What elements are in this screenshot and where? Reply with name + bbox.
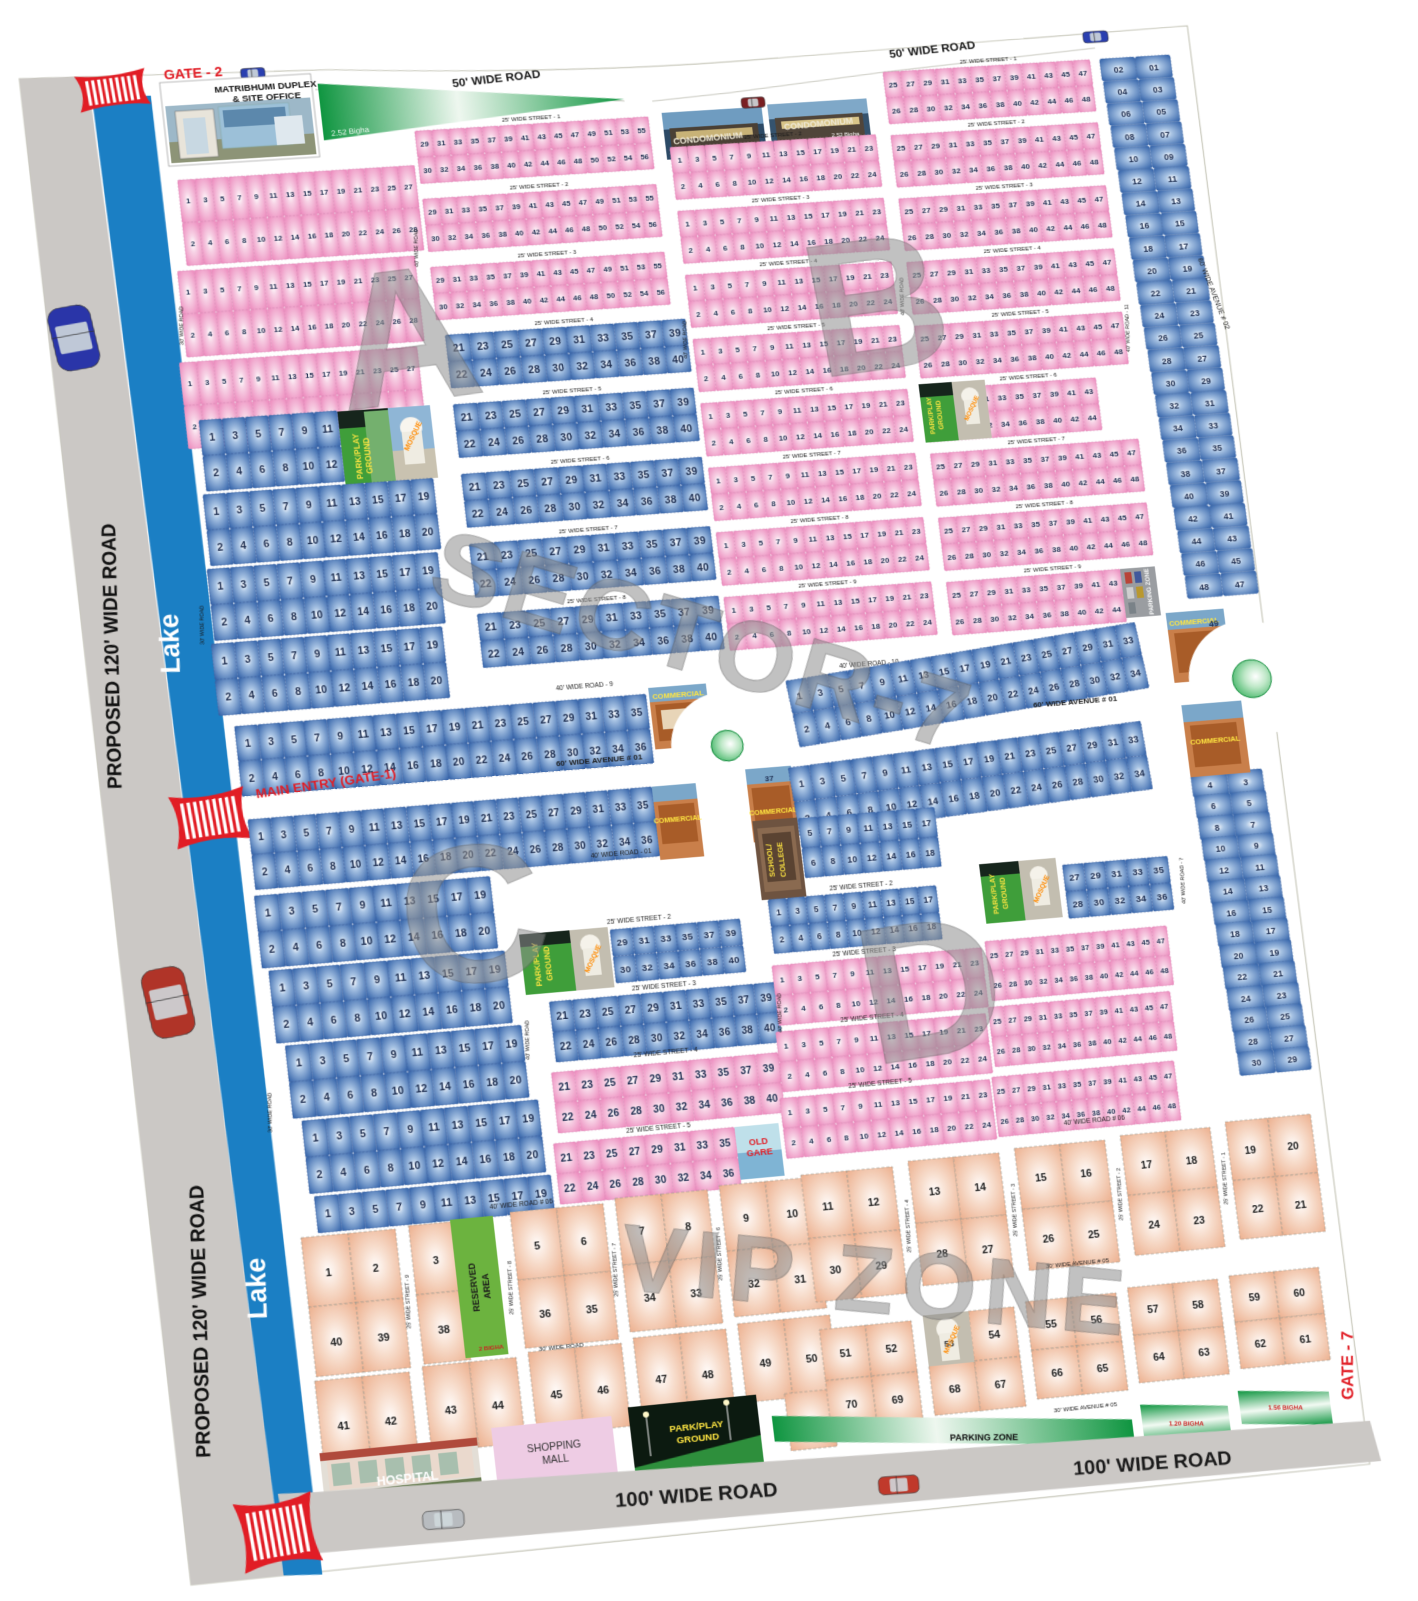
svg-text:47: 47 (1086, 132, 1096, 141)
svg-text:33: 33 (1127, 734, 1139, 746)
svg-text:26: 26 (1244, 1015, 1255, 1026)
svg-text:11: 11 (334, 647, 347, 659)
svg-text:36: 36 (721, 1098, 734, 1110)
svg-text:05: 05 (1156, 107, 1167, 117)
svg-text:31: 31 (444, 206, 453, 215)
svg-text:17: 17 (868, 595, 878, 604)
svg-text:26: 26 (605, 1037, 618, 1049)
svg-text:35: 35 (1069, 1010, 1078, 1019)
svg-text:42: 42 (1086, 542, 1096, 551)
svg-text:42: 42 (1115, 970, 1124, 979)
svg-text:31: 31 (592, 804, 605, 816)
svg-text:12: 12 (1132, 176, 1143, 186)
svg-text:11: 11 (395, 973, 408, 985)
svg-text:40: 40 (680, 424, 693, 435)
svg-text:41: 41 (528, 201, 537, 210)
svg-text:21: 21 (556, 1011, 569, 1023)
svg-text:26: 26 (1051, 779, 1063, 791)
svg-text:42: 42 (1078, 478, 1088, 487)
svg-text:14: 14 (813, 431, 823, 440)
svg-text:13: 13 (810, 404, 820, 413)
svg-text:48: 48 (1167, 1101, 1176, 1111)
svg-text:15: 15 (835, 467, 845, 476)
svg-text:40: 40 (1069, 543, 1079, 552)
svg-text:21: 21 (961, 1092, 971, 1102)
svg-text:18: 18 (503, 1152, 516, 1164)
svg-text:41: 41 (1026, 72, 1036, 81)
svg-text:1.56 BIGHA: 1.56 BIGHA (1268, 1405, 1303, 1412)
svg-text:43: 43 (537, 132, 546, 141)
svg-text:20: 20 (1287, 1142, 1300, 1154)
svg-text:29: 29 (986, 588, 996, 597)
svg-text:30: 30 (423, 166, 432, 175)
svg-text:46: 46 (597, 1385, 610, 1397)
svg-text:36: 36 (986, 164, 996, 173)
svg-text:15: 15 (376, 569, 389, 581)
svg-text:27: 27 (961, 525, 971, 534)
svg-text:19: 19 (1269, 948, 1280, 959)
svg-text:31: 31 (573, 335, 586, 346)
svg-text:36: 36 (640, 497, 653, 508)
svg-text:33: 33 (1021, 585, 1031, 594)
svg-text:41: 41 (1075, 452, 1085, 461)
svg-text:38: 38 (437, 1324, 450, 1336)
svg-text:21: 21 (1004, 751, 1016, 763)
svg-text:10: 10 (256, 326, 265, 335)
svg-text:25: 25 (501, 340, 514, 351)
svg-text:20: 20 (421, 527, 434, 539)
svg-text:33: 33 (696, 1140, 709, 1152)
svg-text:11: 11 (357, 729, 370, 741)
svg-text:26: 26 (512, 436, 525, 447)
svg-text:15: 15 (901, 819, 912, 830)
svg-text:18: 18 (871, 621, 881, 630)
svg-text:35: 35 (645, 539, 658, 550)
svg-text:18: 18 (430, 758, 443, 770)
svg-text:43: 43 (1133, 1074, 1142, 1084)
svg-text:41: 41 (1067, 388, 1077, 397)
svg-text:48: 48 (573, 156, 582, 165)
svg-text:29: 29 (428, 207, 437, 216)
svg-text:29: 29 (1027, 1084, 1036, 1094)
svg-text:45: 45 (1093, 322, 1103, 331)
svg-text:30' WIDE ROAD: 30' WIDE ROAD (267, 1093, 274, 1133)
svg-text:12: 12 (877, 1130, 888, 1140)
svg-text:53: 53 (636, 262, 645, 271)
svg-text:14: 14 (821, 495, 831, 504)
svg-text:40: 40 (697, 563, 710, 574)
svg-text:33: 33 (461, 205, 470, 214)
svg-text:43: 43 (1108, 579, 1118, 588)
svg-text:26: 26 (521, 751, 534, 763)
svg-text:41: 41 (536, 269, 545, 278)
svg-text:41: 41 (1034, 135, 1044, 144)
svg-text:26: 26 (899, 170, 909, 179)
svg-text:37: 37 (495, 203, 504, 212)
svg-text:10: 10 (1215, 844, 1226, 854)
svg-text:29: 29 (616, 937, 629, 949)
svg-text:13: 13 (286, 281, 295, 290)
svg-text:45: 45 (1117, 513, 1127, 522)
svg-text:36: 36 (1002, 291, 1012, 300)
svg-text:37: 37 (653, 399, 666, 410)
svg-text:50: 50 (606, 291, 615, 300)
svg-text:47: 47 (1110, 321, 1120, 330)
svg-text:16: 16 (376, 531, 389, 543)
svg-text:16: 16 (479, 1155, 492, 1167)
svg-text:57: 57 (1147, 1305, 1160, 1317)
svg-text:15: 15 (842, 532, 852, 541)
svg-text:47: 47 (1160, 1002, 1169, 1011)
svg-text:20: 20 (526, 1150, 539, 1162)
svg-text:10: 10 (349, 859, 362, 871)
svg-text:25: 25 (602, 1007, 615, 1019)
svg-text:20: 20 (452, 757, 465, 769)
svg-text:29: 29 (649, 1074, 662, 1086)
svg-text:40: 40 (515, 228, 524, 237)
svg-text:10: 10 (778, 433, 788, 442)
svg-text:09: 09 (1163, 152, 1174, 162)
svg-text:10: 10 (859, 1132, 870, 1142)
svg-text:37: 37 (487, 135, 496, 144)
svg-text:56: 56 (656, 287, 665, 296)
svg-text:14: 14 (439, 1082, 452, 1094)
svg-text:39: 39 (1219, 488, 1230, 498)
svg-text:27: 27 (913, 143, 923, 152)
svg-text:10: 10 (256, 235, 265, 244)
svg-text:46: 46 (1121, 540, 1131, 549)
svg-text:38: 38 (664, 495, 677, 506)
svg-text:52: 52 (623, 290, 632, 299)
svg-text:45: 45 (1145, 1003, 1154, 1012)
svg-text:29: 29 (931, 141, 941, 150)
svg-text:18: 18 (486, 1078, 499, 1090)
svg-text:07: 07 (1160, 129, 1171, 139)
svg-text:39: 39 (685, 466, 698, 477)
svg-text:32: 32 (675, 1102, 688, 1114)
svg-text:34: 34 (663, 960, 676, 972)
svg-text:33: 33 (1132, 867, 1144, 879)
svg-text:26: 26 (520, 505, 533, 517)
svg-text:40: 40 (1053, 416, 1063, 425)
svg-text:35: 35 (1065, 944, 1074, 953)
svg-text:56: 56 (648, 220, 657, 229)
svg-text:40: 40 (728, 955, 740, 967)
svg-text:32: 32 (592, 500, 605, 511)
svg-text:24: 24 (586, 1181, 599, 1193)
svg-text:46: 46 (565, 225, 574, 234)
svg-text:53: 53 (620, 127, 629, 136)
svg-text:30: 30 (619, 964, 631, 976)
svg-text:31: 31 (988, 458, 998, 467)
svg-text:12: 12 (788, 368, 798, 377)
svg-text:18: 18 (816, 173, 826, 182)
svg-text:25: 25 (387, 184, 396, 193)
svg-text:32: 32 (1042, 1043, 1051, 1053)
svg-text:37: 37 (764, 774, 774, 784)
svg-text:13: 13 (928, 1187, 941, 1199)
svg-text:14: 14 (828, 560, 838, 569)
svg-text:31: 31 (638, 935, 651, 947)
svg-text:38: 38 (1043, 481, 1053, 490)
svg-text:30: 30 (934, 167, 944, 176)
svg-text:48: 48 (1138, 538, 1148, 547)
svg-text:51: 51 (620, 263, 629, 272)
svg-text:25: 25 (1280, 1012, 1291, 1023)
svg-text:10: 10 (1128, 154, 1139, 164)
svg-text:26: 26 (947, 553, 957, 562)
svg-text:27: 27 (953, 461, 963, 470)
svg-text:35: 35 (1015, 392, 1025, 401)
svg-text:35: 35 (983, 138, 993, 147)
svg-text:22: 22 (475, 755, 488, 767)
svg-text:15: 15 (303, 280, 312, 289)
svg-text:33: 33 (469, 273, 478, 282)
svg-text:14: 14 (1222, 887, 1233, 897)
svg-text:22: 22 (1252, 1204, 1265, 1216)
svg-text:33: 33 (1013, 521, 1023, 530)
svg-text:41: 41 (1050, 261, 1060, 270)
svg-text:48: 48 (581, 224, 590, 233)
svg-text:34: 34 (1009, 483, 1019, 492)
svg-text:PARKING ZONE: PARKING ZONE (950, 1432, 1019, 1442)
svg-text:28: 28 (1072, 777, 1084, 789)
svg-text:40: 40 (330, 1337, 343, 1349)
svg-text:51: 51 (612, 195, 621, 204)
svg-text:21: 21 (1186, 286, 1197, 296)
svg-text:17: 17 (498, 1116, 511, 1128)
svg-text:19: 19 (830, 146, 840, 155)
svg-text:38: 38 (995, 100, 1005, 109)
svg-text:31: 31 (581, 404, 594, 415)
svg-text:42: 42 (1038, 161, 1048, 170)
svg-text:38: 38 (1027, 353, 1037, 362)
svg-text:34: 34 (1025, 612, 1035, 621)
svg-text:26: 26 (1158, 333, 1169, 343)
svg-text:31: 31 (1004, 586, 1014, 595)
svg-text:39: 39 (760, 993, 773, 1005)
svg-text:32: 32 (1114, 896, 1126, 908)
svg-text:43: 43 (1084, 387, 1094, 396)
svg-text:30: 30 (942, 231, 952, 240)
svg-text:40: 40 (1061, 479, 1071, 488)
svg-text:12: 12 (772, 240, 782, 249)
svg-text:30: 30 (974, 486, 984, 495)
svg-text:19: 19 (426, 640, 439, 652)
svg-text:12: 12 (330, 534, 343, 546)
svg-text:20: 20 (989, 788, 1001, 800)
svg-text:33: 33 (692, 999, 705, 1011)
svg-text:19: 19 (885, 594, 895, 603)
svg-text:39: 39 (1025, 199, 1035, 208)
svg-text:16: 16 (838, 494, 848, 503)
svg-text:47: 47 (1102, 258, 1112, 267)
svg-text:29: 29 (1090, 871, 1102, 883)
svg-text:32: 32 (959, 230, 969, 239)
svg-text:36: 36 (632, 427, 645, 438)
svg-text:42: 42 (1054, 287, 1064, 296)
svg-text:33: 33 (613, 472, 626, 483)
svg-text:29: 29 (420, 139, 429, 148)
svg-text:22: 22 (897, 554, 907, 563)
svg-text:34: 34 (977, 229, 987, 238)
svg-text:48: 48 (1105, 284, 1115, 293)
svg-text:35: 35 (470, 136, 479, 145)
svg-text:11: 11 (322, 425, 335, 436)
svg-text:33: 33 (1208, 421, 1219, 431)
svg-text:36: 36 (1010, 354, 1020, 363)
svg-text:26: 26 (609, 1179, 622, 1191)
svg-text:38: 38 (498, 229, 507, 238)
svg-text:14: 14 (361, 681, 374, 693)
svg-text:31: 31 (674, 1142, 687, 1154)
svg-text:35: 35 (1031, 520, 1041, 529)
svg-text:27: 27 (1012, 1085, 1021, 1095)
svg-text:13: 13 (817, 469, 827, 478)
svg-text:34: 34 (696, 1029, 709, 1041)
svg-text:30: 30 (1031, 1114, 1040, 1124)
svg-text:11: 11 (330, 573, 343, 585)
svg-text:20: 20 (430, 676, 443, 688)
svg-text:27: 27 (525, 338, 538, 349)
svg-text:49: 49 (595, 197, 604, 206)
svg-text:22: 22 (560, 1041, 573, 1053)
svg-text:31: 31 (940, 77, 950, 86)
svg-text:16: 16 (384, 680, 397, 692)
svg-text:45: 45 (550, 1389, 563, 1401)
svg-text:27: 27 (1283, 1033, 1294, 1044)
svg-text:23: 23 (1189, 308, 1200, 318)
svg-text:49: 49 (603, 264, 612, 273)
svg-text:46: 46 (1195, 559, 1206, 569)
svg-text:37: 37 (1216, 466, 1227, 476)
svg-text:47: 47 (655, 1374, 668, 1386)
svg-text:40' WIDE ROAD: 40' WIDE ROAD (682, 320, 689, 358)
svg-text:43: 43 (1126, 939, 1135, 948)
svg-text:25: 25 (1193, 331, 1204, 341)
svg-text:10: 10 (747, 177, 757, 186)
svg-text:38: 38 (706, 956, 719, 968)
svg-text:32: 32 (1046, 1113, 1055, 1123)
svg-text:16: 16 (912, 1127, 922, 1137)
svg-text:41: 41 (1111, 940, 1120, 949)
svg-text:28: 28 (917, 169, 927, 178)
svg-text:30' WIDE ROAD: 30' WIDE ROAD (179, 306, 186, 345)
svg-text:46: 46 (1080, 222, 1090, 231)
svg-text:36: 36 (1156, 892, 1168, 904)
svg-text:32: 32 (673, 1031, 686, 1043)
svg-text:48: 48 (1081, 95, 1091, 104)
svg-text:39: 39 (1017, 136, 1027, 145)
svg-text:40: 40 (1184, 491, 1195, 501)
svg-text:33: 33 (660, 934, 673, 946)
svg-text:13: 13 (802, 340, 812, 349)
svg-text:27: 27 (624, 1005, 637, 1017)
svg-text:30: 30 (1165, 378, 1176, 388)
svg-text:59: 59 (1248, 1292, 1261, 1304)
svg-text:25: 25 (517, 716, 530, 728)
svg-text:10: 10 (391, 1086, 404, 1098)
svg-text:46: 46 (1148, 1033, 1157, 1042)
svg-text:35: 35 (621, 332, 634, 343)
svg-text:16: 16 (462, 1080, 475, 1092)
svg-text:19: 19 (448, 722, 461, 734)
svg-text:33: 33 (621, 541, 634, 552)
svg-text:43: 43 (553, 268, 562, 277)
svg-text:38: 38 (1003, 163, 1013, 172)
svg-text:46: 46 (1096, 348, 1106, 357)
svg-text:45: 45 (1109, 449, 1119, 458)
svg-text:13: 13 (380, 727, 393, 739)
svg-text:10: 10 (786, 498, 796, 507)
svg-text:34: 34 (985, 292, 995, 301)
svg-text:06: 06 (1121, 109, 1132, 119)
svg-text:13: 13 (353, 571, 366, 583)
svg-text:42: 42 (1118, 1036, 1127, 1045)
svg-text:41: 41 (1042, 198, 1052, 207)
svg-text:40: 40 (764, 1023, 777, 1035)
svg-text:40: 40 (522, 296, 531, 305)
svg-text:40' WIDE ROAD: 40' WIDE ROAD (777, 993, 784, 1032)
svg-text:15: 15 (403, 725, 416, 737)
svg-text:16: 16 (407, 760, 420, 772)
svg-text:22: 22 (882, 426, 892, 435)
svg-text:23: 23 (581, 1080, 594, 1092)
svg-text:23: 23 (579, 1009, 592, 1021)
svg-text:70: 70 (845, 1400, 858, 1412)
svg-text:49: 49 (1208, 618, 1219, 628)
svg-text:11: 11 (1167, 174, 1177, 184)
svg-text:35: 35 (629, 401, 642, 412)
svg-text:38: 38 (648, 356, 661, 367)
svg-text:15: 15 (372, 495, 385, 507)
svg-text:45: 45 (1077, 196, 1087, 205)
svg-text:23: 23 (978, 1091, 988, 1101)
svg-text:24: 24 (915, 553, 925, 562)
svg-text:10: 10 (360, 936, 373, 948)
svg-text:69: 69 (891, 1395, 904, 1407)
svg-text:18: 18 (403, 603, 416, 615)
svg-text:46: 46 (557, 157, 566, 166)
svg-text:34: 34 (700, 1171, 713, 1183)
svg-text:30: 30 (574, 840, 587, 852)
svg-text:36: 36 (718, 1027, 731, 1039)
svg-text:29: 29 (923, 78, 933, 87)
svg-text:23: 23 (370, 185, 379, 194)
svg-text:22: 22 (889, 490, 899, 499)
svg-text:44: 44 (1079, 350, 1089, 359)
svg-text:16: 16 (380, 605, 393, 617)
svg-text:41: 41 (337, 1421, 350, 1433)
svg-text:42: 42 (1046, 224, 1056, 233)
svg-text:26: 26 (607, 1108, 620, 1120)
svg-text:15: 15 (380, 644, 393, 656)
svg-text:32: 32 (951, 166, 961, 175)
svg-text:31: 31 (948, 140, 958, 149)
svg-text:52: 52 (885, 1344, 898, 1356)
svg-text:30: 30 (560, 432, 573, 443)
svg-text:45: 45 (1231, 556, 1242, 566)
svg-text:12: 12 (338, 683, 351, 695)
svg-text:34: 34 (1173, 423, 1184, 433)
svg-text:29: 29 (947, 268, 957, 277)
svg-text:39: 39 (377, 1332, 390, 1344)
svg-text:18: 18 (863, 557, 873, 566)
svg-text:14: 14 (455, 1157, 468, 1169)
svg-text:40: 40 (1099, 971, 1108, 980)
svg-text:20: 20 (864, 427, 874, 436)
svg-text:24: 24 (1240, 994, 1251, 1005)
